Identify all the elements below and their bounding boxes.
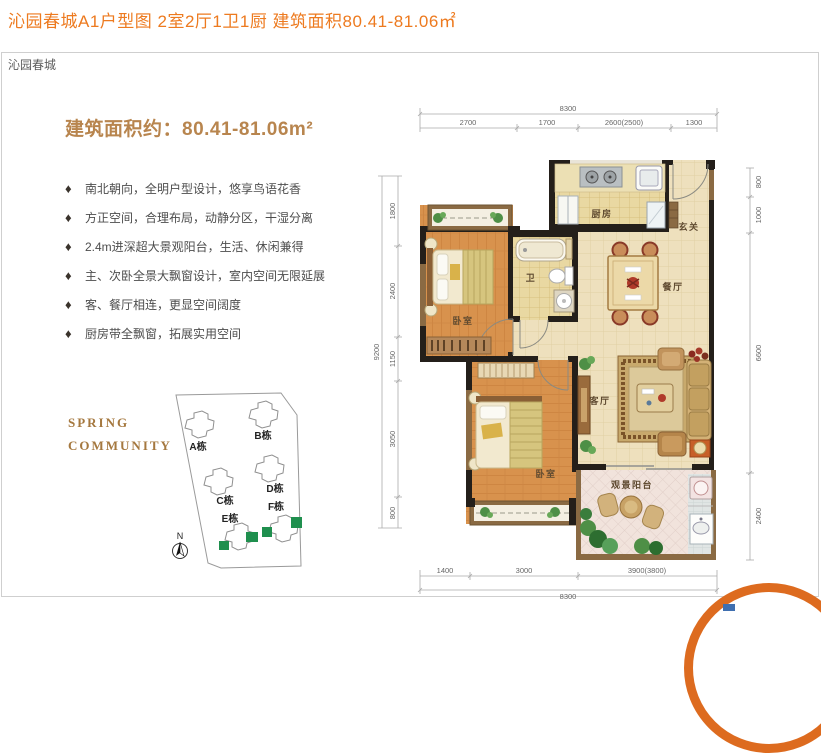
highlight-green: [246, 532, 258, 542]
building-b-label: B栋: [254, 429, 271, 442]
brand-community: COMMUNITY: [68, 438, 172, 454]
dim-top-seg: 2600(2500): [605, 118, 644, 127]
room-label-kitchen: 厨房: [591, 208, 612, 219]
room-label-living: 客厅: [588, 395, 610, 406]
dim-left-seg: 3050: [388, 431, 397, 448]
bed-bottom: [469, 392, 542, 470]
diamond-icon: ♦: [65, 299, 85, 311]
building-e-label: E栋: [222, 512, 239, 525]
room-label-balcony: 观景阳台: [611, 479, 653, 490]
highlight-green: [262, 527, 272, 537]
diamond-icon: ♦: [65, 328, 85, 340]
diamond-icon: ♦: [65, 241, 85, 253]
floor-plan: 卧室 卫 厨房 玄关 餐厅 客厅 卧室 观景阳台 8300: [370, 98, 821, 601]
feature-item: ♦方正空间，合理布局，动静分区，干湿分离: [65, 212, 375, 224]
dim-top-seg: 1300: [686, 118, 703, 127]
feature-item: ♦客、餐厅相连，更显空间阔度: [65, 299, 375, 311]
feature-list: ♦南北朝向，全明户型设计，悠享鸟语花香 ♦方正空间，合理布局，动静分区，干湿分离…: [65, 183, 375, 340]
room-label-bedroom-bottom: 卧室: [535, 468, 556, 479]
room-label-entry: 玄关: [678, 221, 699, 232]
building-a-label: A栋: [189, 440, 206, 453]
project-name-tab: 沁园春城: [8, 56, 56, 73]
highlight-green: [291, 517, 302, 528]
logo-blue-mark: [723, 604, 735, 611]
dim-left-seg: 1800: [388, 203, 397, 220]
dim-left-seg: 800: [388, 507, 397, 520]
feature-text: 主、次卧全景大飘窗设计，室内空间无限延展: [85, 270, 325, 282]
info-panel: 建筑面积约：80.41-81.06m² ♦南北朝向，全明户型设计，悠享鸟语花香 …: [65, 114, 375, 357]
feature-text: 厨房带全飘窗，拓展实用空间: [85, 328, 241, 340]
north-label: N: [177, 531, 184, 541]
wardrobe: [478, 363, 534, 378]
dim-bottom-total: 8300: [560, 592, 577, 601]
diamond-icon: ♦: [65, 212, 85, 224]
dim-left-seg: 2400: [388, 283, 397, 300]
dim-top-seg: 1700: [539, 118, 556, 127]
dim-bottom-seg: 1400: [437, 566, 454, 575]
bathtub: [516, 239, 572, 261]
developer-logo: [684, 583, 821, 753]
area-heading: 建筑面积约：80.41-81.06m²: [65, 114, 375, 141]
feature-text: 方正空间，合理布局，动静分区，干湿分离: [85, 212, 313, 224]
feature-item: ♦主、次卧全景大飘窗设计，室内空间无限延展: [65, 270, 375, 282]
toilet: [549, 267, 573, 285]
room-label-bedroom-top: 卧室: [452, 315, 473, 326]
room-label-dining: 餐厅: [661, 281, 683, 292]
site-map: A栋 B栋 C栋 D栋 E栋 F栋 N: [163, 386, 323, 578]
feature-text: 2.4m进深超大景观阳台，生活、休闲兼得: [85, 241, 304, 253]
dim-right-seg: 2400: [754, 508, 763, 525]
dim-left-seg: 1150: [388, 351, 397, 367]
dim-right-seg: 6600: [754, 345, 763, 362]
dresser: [427, 337, 491, 354]
building-d-label: D栋: [266, 482, 283, 495]
brand-spring: SPRING: [68, 415, 129, 431]
dim-right-seg: 1000: [754, 207, 763, 224]
feature-item: ♦南北朝向，全明户型设计，悠享鸟语花香: [65, 183, 375, 195]
north-arrow-icon: N: [173, 531, 188, 559]
room-label-bathroom: 卫: [526, 273, 537, 283]
building-c-label: C栋: [216, 494, 233, 507]
dim-top-total: 8300: [560, 104, 577, 113]
feature-item: ♦2.4m进深超大景观阳台，生活、休闲兼得: [65, 241, 375, 253]
building-f-label: F栋: [268, 500, 284, 513]
dim-right-seg: 800: [754, 176, 763, 189]
feature-text: 客、餐厅相连，更显空间阔度: [85, 299, 241, 311]
dim-top-seg: 2700: [460, 118, 477, 127]
diamond-icon: ♦: [65, 183, 85, 195]
dim-left-total: 9200: [372, 344, 381, 361]
page-title: 沁园春城A1户型图 2室2厅1卫1厨 建筑面积80.41-81.06㎡: [8, 7, 456, 32]
highlight-green: [219, 541, 229, 550]
dim-bottom-seg: 3900(3800): [628, 566, 667, 575]
bath-sink: [554, 290, 574, 312]
feature-text: 南北朝向，全明户型设计，悠享鸟语花香: [85, 183, 301, 195]
diamond-icon: ♦: [65, 270, 85, 282]
dim-bottom-seg: 3000: [516, 566, 533, 575]
feature-item: ♦厨房带全飘窗，拓展实用空间: [65, 328, 375, 340]
